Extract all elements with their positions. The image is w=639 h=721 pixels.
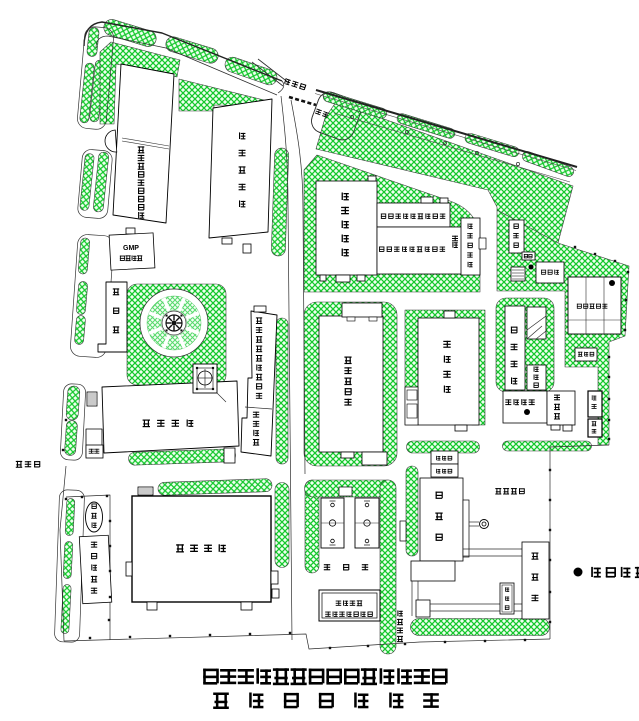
svg-text:GMP: GMP <box>123 245 139 252</box>
